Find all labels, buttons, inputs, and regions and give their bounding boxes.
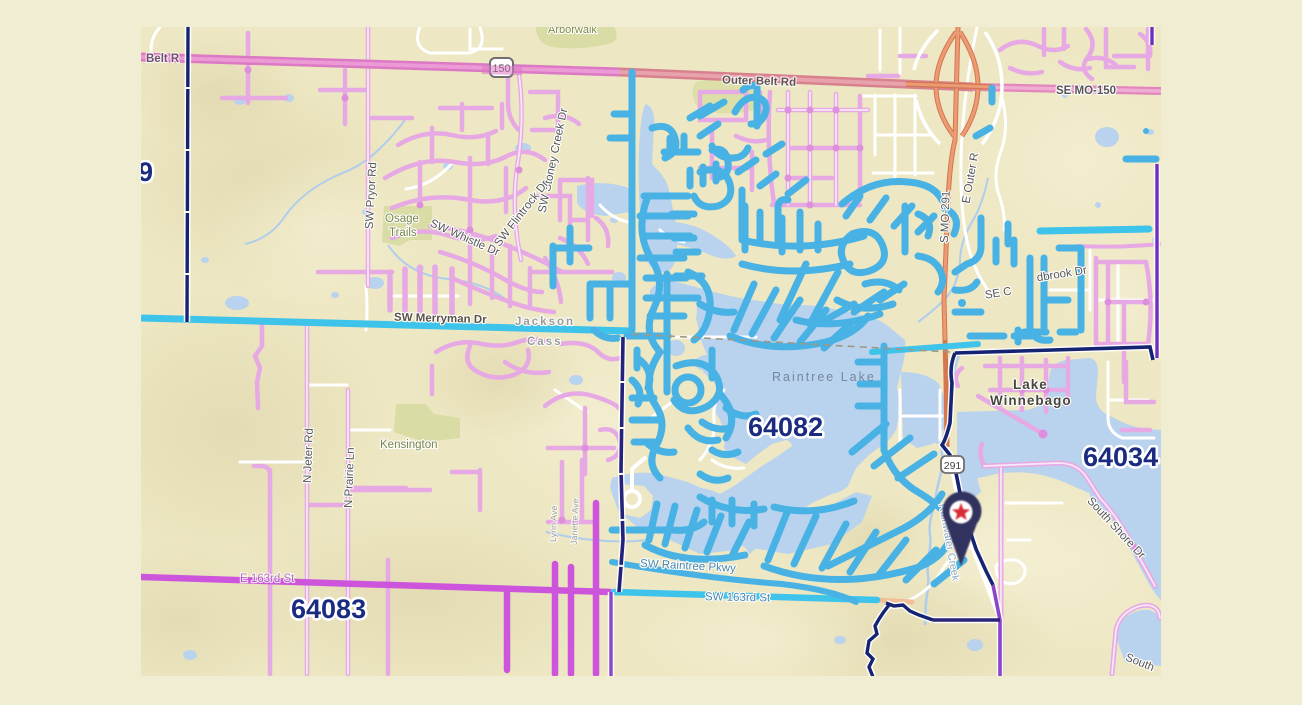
svg-text:N Prairie Ln: N Prairie Ln	[343, 447, 357, 508]
svg-text:N Jeter Rd: N Jeter Rd	[302, 428, 316, 483]
svg-text:SW 163rd St: SW 163rd St	[705, 591, 771, 604]
svg-text:Lake: Lake	[1013, 377, 1048, 392]
svg-text:64082: 64082	[748, 412, 823, 442]
svg-text:Osage: Osage	[385, 213, 419, 225]
svg-text:Raintree Lake: Raintree Lake	[772, 370, 876, 384]
svg-text:Jackson: Jackson	[515, 316, 575, 328]
svg-text:Kensington: Kensington	[380, 439, 438, 451]
svg-text:Trails: Trails	[389, 227, 417, 239]
svg-text:Janette Ave: Janette Ave	[569, 498, 581, 545]
svg-text:291: 291	[944, 460, 962, 472]
svg-text:S MO-291: S MO-291	[939, 190, 953, 243]
svg-text:Cass: Cass	[527, 336, 563, 348]
svg-text:Belt R: Belt R	[146, 53, 180, 65]
svg-text:Winnebago: Winnebago	[990, 393, 1072, 408]
svg-text:E 163rd St: E 163rd St	[240, 573, 295, 585]
svg-text:SW Merryman Dr: SW Merryman Dr	[394, 312, 487, 326]
svg-text:64083: 64083	[291, 594, 366, 624]
svg-text:Lynn Ave: Lynn Ave	[548, 505, 559, 542]
svg-text:64034: 64034	[1083, 442, 1158, 472]
svg-text:SE MO-150: SE MO-150	[1056, 85, 1116, 97]
